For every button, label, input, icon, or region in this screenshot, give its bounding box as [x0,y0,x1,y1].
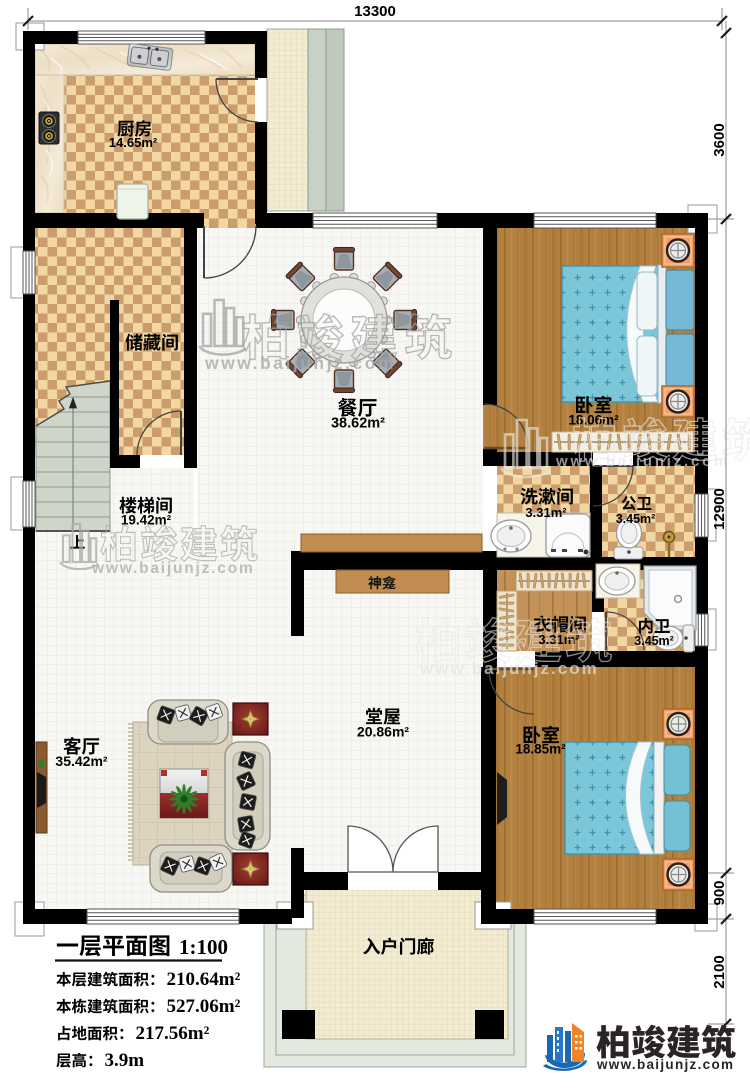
svg-text:www.baijunjz.com: www.baijunjz.com [596,1057,734,1072]
svg-text:35.42m²: 35.42m² [55,753,107,769]
svg-text:www.baijunjz.com: www.baijunjz.com [91,560,255,577]
svg-text:1:100: 1:100 [179,935,228,959]
svg-text:20.86m²: 20.86m² [357,724,409,740]
svg-text:14.65m²: 14.65m² [109,135,158,150]
svg-text:900: 900 [711,880,728,905]
svg-text:3.45m²: 3.45m² [616,512,656,526]
svg-text:3.31m²: 3.31m² [525,505,567,520]
svg-text:217.56m²: 217.56m² [136,1023,210,1044]
svg-text:www.baijunjz.com: www.baijunjz.com [204,353,396,373]
svg-text:527.06m²: 527.06m² [167,996,241,1017]
svg-text:38.62m²: 38.62m² [331,416,385,432]
svg-text:3.9m: 3.9m [105,1050,145,1071]
svg-text:www.baijunjz.com: www.baijunjz.com [555,453,730,470]
svg-text:12900: 12900 [711,488,728,530]
svg-text:18.85m²: 18.85m² [515,742,566,757]
svg-text:3600: 3600 [711,123,728,156]
svg-text:2100: 2100 [711,955,728,988]
svg-text:210.64m²: 210.64m² [167,969,241,990]
svg-text:www.baijunjz.com: www.baijunjz.com [419,659,599,678]
svg-text:18.06m²: 18.06m² [568,413,619,428]
svg-text:3.45m²: 3.45m² [634,634,674,648]
svg-text:13300: 13300 [354,3,396,20]
